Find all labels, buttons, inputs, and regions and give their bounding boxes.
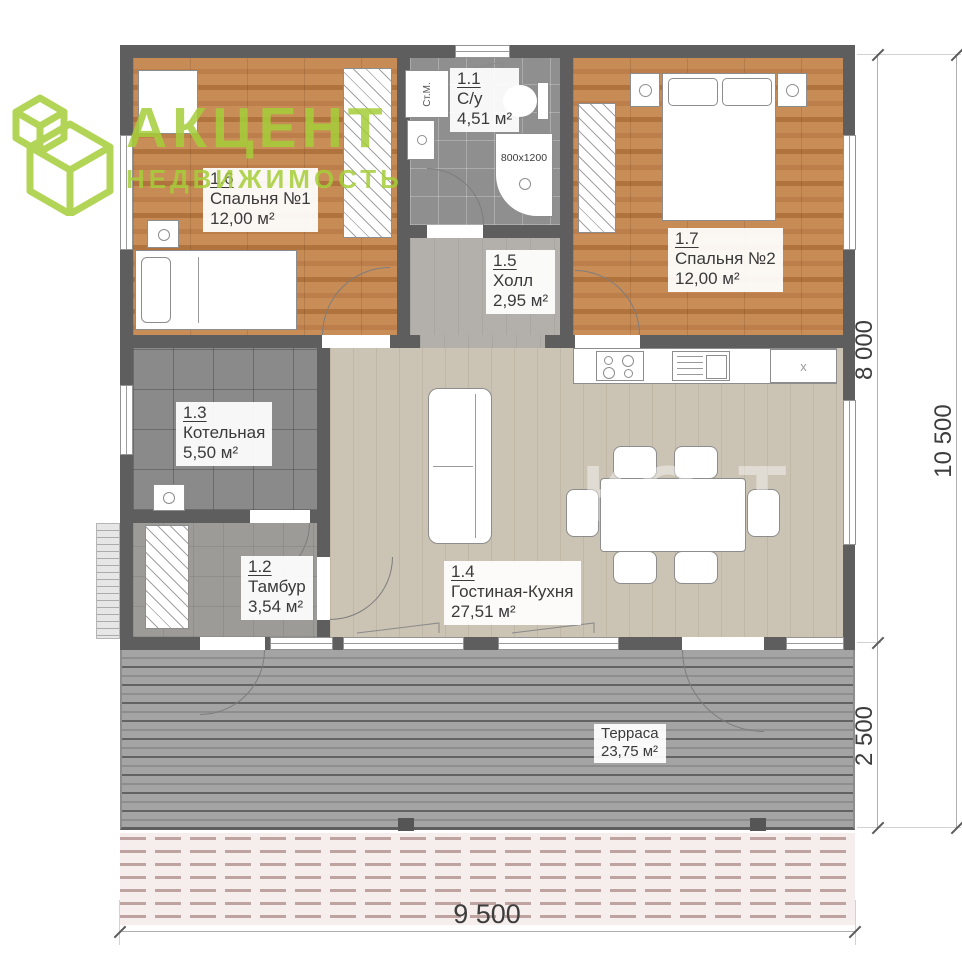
dining-chair (566, 489, 599, 537)
drain-icon (417, 135, 427, 145)
bed-single-bedroom1 (135, 250, 297, 330)
room-name: Спальня №2 (675, 249, 776, 269)
window-bedroom2-right (843, 135, 856, 250)
extension-line (119, 900, 120, 945)
bathroom-sink (407, 120, 435, 160)
window-tambour-bottom (270, 637, 333, 650)
pillow (722, 78, 772, 106)
stove (596, 351, 644, 381)
stove-burner-icon (603, 367, 615, 379)
drainer-icon (677, 356, 703, 378)
nightstand-left-bedroom2 (630, 73, 660, 107)
door-opening-boiler (250, 510, 310, 523)
pillow (141, 257, 171, 323)
bed-double-bedroom2 (662, 73, 776, 221)
lamp-icon (786, 84, 799, 97)
room-name: С/у (457, 89, 512, 109)
dining-chair (613, 551, 657, 584)
kitchen-sink (672, 351, 730, 381)
sofa-back (475, 394, 476, 538)
room-area: 3,54 м² (248, 597, 306, 617)
blanket-seam (198, 257, 199, 323)
door-opening-bedroom1 (322, 335, 390, 348)
room-number: 1.5 (493, 251, 548, 271)
room-label-bedroom2: 1.7 Спальня №2 12,00 м² (668, 228, 783, 292)
tambour-storage (145, 525, 189, 629)
extension-line (857, 54, 961, 55)
dining-chair (674, 446, 718, 479)
door-opening-bedroom2 (575, 335, 640, 348)
extension-line (857, 827, 961, 828)
logo-text: АКЦЕНТ НЕДВИЖИМОСТЬ (126, 100, 403, 195)
door-opening-terrace (682, 637, 764, 650)
stove-burner-icon (624, 369, 633, 378)
room-number: 1.4 (451, 562, 574, 582)
room-number: 1.7 (675, 229, 776, 249)
room-area: 2,95 м² (493, 291, 548, 311)
logo-title: АКЦЕНТ (126, 100, 403, 157)
room-label-tambour: 1.2 Тамбур 3,54 м² (241, 556, 313, 620)
dimension-right-main: 8 000 (851, 300, 879, 400)
window-living-right (843, 400, 856, 545)
room-label-hall: 1.5 Холл 2,95 м² (486, 250, 555, 314)
door-opening-tambour-living (317, 557, 330, 620)
nightstand-bedroom1 (147, 220, 179, 248)
dimension-tick (872, 637, 885, 650)
floor-plan: 8 000 2 500 10 500 9 500 (0, 0, 962, 957)
room-area: 12,00 м² (675, 269, 776, 289)
dimension-tick (872, 822, 885, 835)
extension-line (855, 900, 856, 945)
stove-burner-icon (622, 355, 634, 367)
washing-machine-label: Ст.М. (422, 82, 433, 107)
room-label-bathroom: 1.1 С/у 4,51 м² (450, 68, 519, 132)
room-number: 1.1 (457, 69, 512, 89)
logo-cube-icon (10, 92, 118, 216)
lamp-icon (639, 84, 652, 97)
boiler-unit (153, 484, 185, 511)
shower-size-label: 800х1200 (497, 151, 551, 166)
window-living-bottom-1 (343, 637, 464, 650)
window-living-bottom-2 (498, 637, 619, 650)
room-name: Холл (493, 271, 548, 291)
pillow (668, 78, 718, 106)
boiler-dial-icon (163, 492, 175, 504)
entrance-steps (96, 523, 120, 639)
shower-drain-icon (519, 178, 531, 190)
logo: АКЦЕНТ НЕДВИЖИМОСТЬ (10, 92, 403, 216)
sofa-seam (433, 466, 473, 467)
room-label-terrace: Терраса 23,75 м² (594, 724, 666, 763)
dimension-right-total: 10 500 (930, 386, 958, 496)
dining-chair (674, 551, 718, 584)
window-bathroom-top (455, 45, 510, 58)
fridge: x (770, 349, 837, 383)
dimension-right-terrace: 2 500 (851, 686, 879, 786)
dining-table (600, 478, 746, 552)
room-name: Гостиная-Кухня (451, 582, 574, 602)
room-label-living: 1.4 Гостиная-Кухня 27,51 м² (444, 561, 581, 625)
terrace-post (398, 818, 414, 831)
dimension-bottom-width: 9 500 (420, 899, 554, 930)
room-area: 23,75 м² (601, 743, 659, 761)
dimension-line-bottom (120, 931, 855, 932)
stove-burner-icon (604, 356, 613, 365)
terrace-post (750, 818, 766, 831)
washing-machine: Ст.М. (405, 70, 449, 118)
wardrobe-bedroom2 (578, 103, 616, 233)
room-label-boiler: 1.3 Котельная 5,50 м² (176, 402, 272, 466)
dining-chair (747, 489, 780, 537)
dimension-tick (872, 49, 885, 62)
room-area: 27,51 м² (451, 602, 574, 622)
door-opening-bathroom (427, 225, 483, 238)
room-area: 4,51 м² (457, 109, 512, 129)
slider-mark-icon (355, 620, 455, 635)
room-number: 1.2 (248, 557, 306, 577)
room-name: Тамбур (248, 577, 306, 597)
dimension-tick (114, 926, 127, 939)
nightstand-right-bedroom2 (777, 73, 807, 107)
logo-subtitle: НЕДВИЖИМОСТЬ (126, 164, 403, 195)
room-name: Терраса (601, 725, 659, 743)
dining-chair (613, 446, 657, 479)
window-boiler-left (120, 385, 133, 455)
room-name: Котельная (183, 423, 265, 443)
sink-basin (706, 355, 727, 379)
lamp-icon (158, 229, 170, 241)
room-number: 1.3 (183, 403, 265, 423)
door-opening-entrance (200, 637, 265, 650)
fridge-mark: x (800, 359, 807, 374)
window-living-bottom-3 (786, 637, 844, 650)
toilet-tank (537, 82, 549, 120)
floor-hall-passage (420, 335, 545, 348)
room-area: 5,50 м² (183, 443, 265, 463)
sofa (428, 388, 492, 544)
